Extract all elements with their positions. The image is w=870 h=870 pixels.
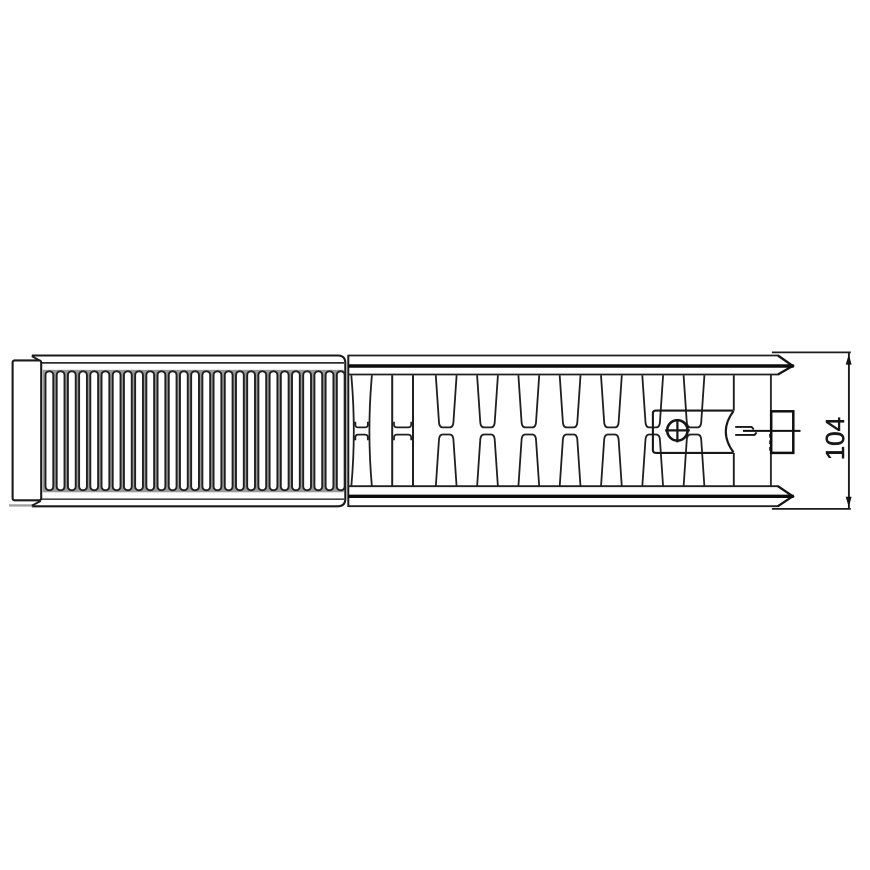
svg-text:104: 104 — [820, 417, 850, 460]
